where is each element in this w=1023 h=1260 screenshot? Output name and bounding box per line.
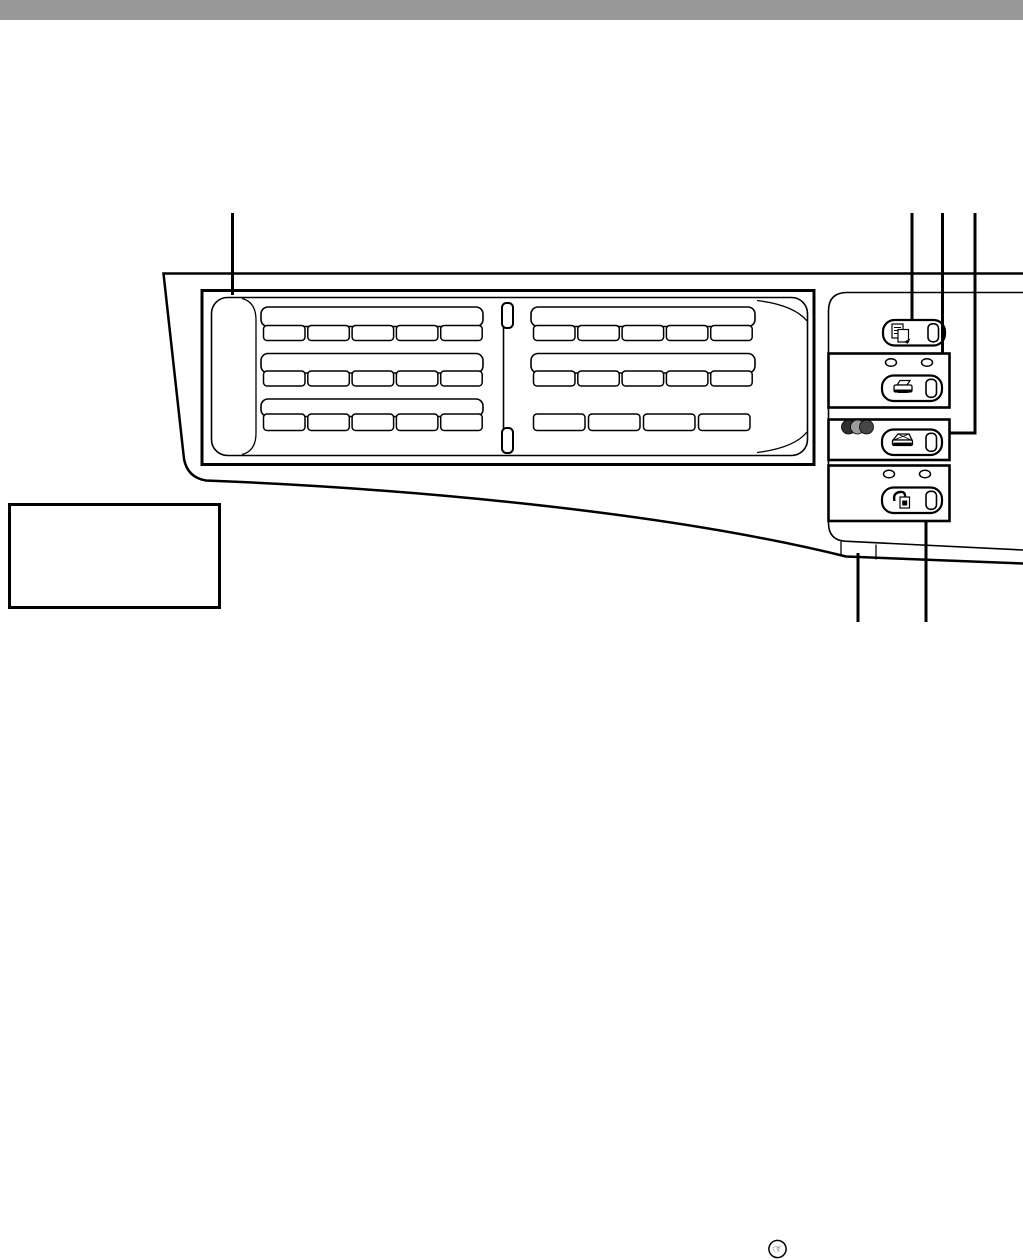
one-touch-key: [396, 371, 438, 386]
one-touch-key: [644, 414, 696, 431]
one-touch-keys-left: [264, 371, 483, 386]
one-touch-keys-left: [264, 326, 483, 341]
one-touch-key: [666, 326, 708, 341]
panel-hinge-pill-top: [502, 303, 513, 328]
note-box: [10, 505, 220, 608]
label-bar: [261, 354, 483, 374]
one-touch-key: [699, 414, 751, 431]
one-touch-keys-left: [264, 414, 483, 431]
control-panel-figure: [164, 213, 1023, 622]
one-touch-key: [264, 326, 306, 341]
copy-button-pill: [928, 324, 939, 342]
label-bar: [531, 354, 755, 374]
one-touch-key: [352, 414, 394, 431]
fax-led-indicator: [920, 470, 931, 478]
one-touch-key: [308, 371, 350, 386]
print-button-pill: [926, 379, 937, 397]
one-touch-keys-right: [534, 371, 753, 386]
one-touch-key: [711, 326, 753, 341]
print-led-indicator: [922, 359, 933, 367]
one-touch-key: [534, 414, 586, 431]
one-touch-key: [578, 371, 620, 386]
one-touch-key: [308, 414, 350, 431]
panel-hinge-pill-bottom: [502, 428, 513, 453]
callout-line-scan-section: [950, 213, 975, 433]
reference-icon: ☞: [767, 1238, 788, 1259]
one-touch-key: [352, 326, 394, 341]
print-led-indicator: [886, 359, 897, 367]
one-touch-key: [396, 326, 438, 341]
one-touch-key: [441, 414, 483, 431]
one-touch-key: [711, 371, 753, 386]
one-touch-key: [666, 371, 708, 386]
one-touch-key: [396, 414, 438, 431]
label-bar: [531, 307, 755, 327]
one-touch-key: [622, 371, 664, 386]
one-touch-key: [264, 371, 306, 386]
one-touch-keys-right: [534, 326, 753, 341]
one-touch-key: [589, 414, 641, 431]
one-touch-key: [308, 326, 350, 341]
one-touch-key: [534, 371, 576, 386]
one-touch-key: [441, 371, 483, 386]
one-touch-key: [622, 326, 664, 341]
one-touch-key: [534, 326, 576, 341]
one-touch-key: [578, 326, 620, 341]
one-touch-key: [352, 371, 394, 386]
one-touch-key: [264, 414, 306, 431]
fax-button-pill: [926, 491, 937, 509]
label-bar: [261, 307, 483, 327]
scan-button-pill: [926, 433, 937, 451]
fax-led-indicator: [884, 470, 895, 478]
document-page: ☞: [0, 0, 1023, 1260]
one-touch-key: [441, 326, 483, 341]
color-dot: [860, 420, 874, 434]
page-header-bar: [0, 0, 1023, 20]
